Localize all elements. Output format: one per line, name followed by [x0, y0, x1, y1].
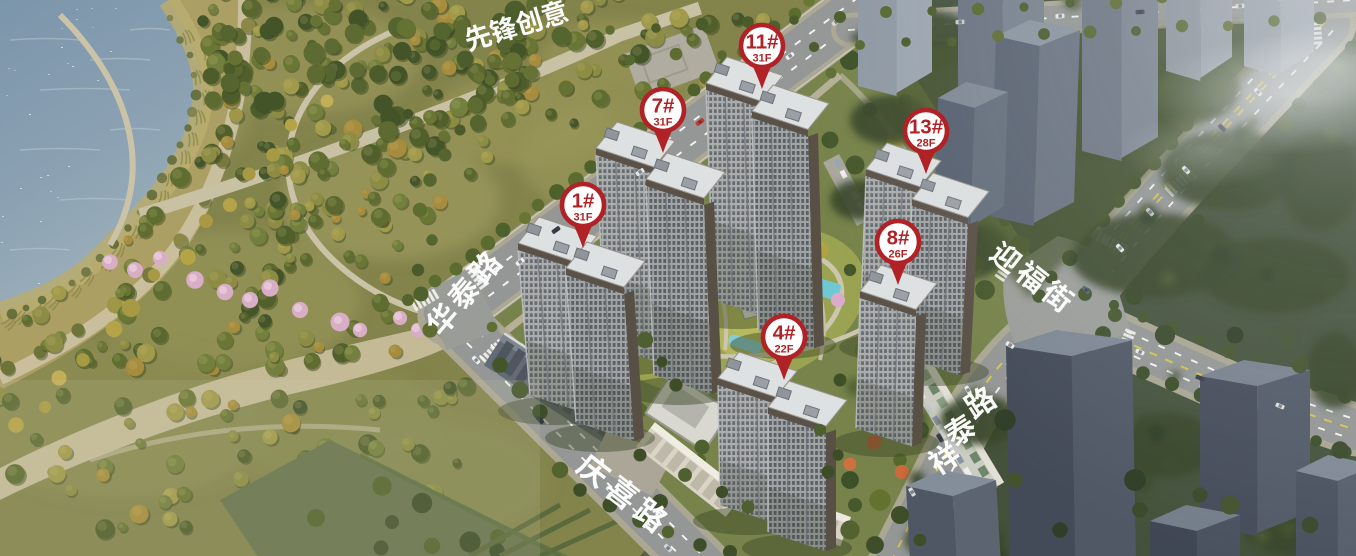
svg-text:7#: 7#	[652, 95, 675, 118]
svg-text:31F: 31F	[654, 117, 673, 129]
svg-text:11#: 11#	[745, 31, 779, 54]
svg-text:13#: 13#	[909, 116, 944, 139]
svg-text:4#: 4#	[773, 322, 796, 345]
svg-text:28F: 28F	[917, 138, 936, 150]
svg-text:31F: 31F	[574, 212, 593, 224]
svg-text:8#: 8#	[887, 227, 910, 250]
svg-text:22F: 22F	[775, 344, 794, 356]
svg-text:1#: 1#	[572, 190, 595, 213]
svg-text:26F: 26F	[889, 249, 908, 261]
svg-text:31F: 31F	[753, 53, 772, 65]
